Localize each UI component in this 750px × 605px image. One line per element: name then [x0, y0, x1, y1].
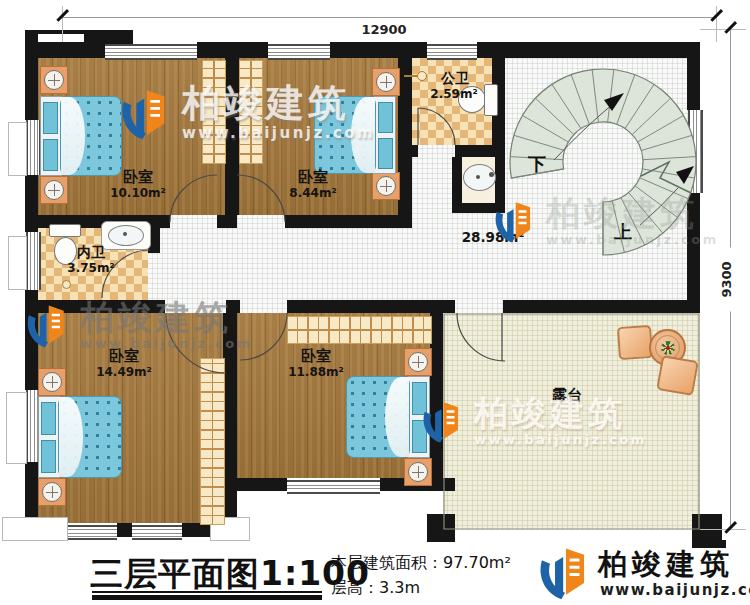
bedroom3-label: 卧室 [86, 348, 162, 365]
title-underline [92, 595, 322, 600]
wall [330, 42, 427, 58]
window [287, 480, 380, 494]
bed-headboard [374, 96, 396, 174]
nightstand [372, 172, 400, 200]
wall [25, 42, 105, 58]
bedroom4-label: 卧室 [278, 348, 354, 365]
nightstand [40, 66, 68, 94]
wall [225, 42, 239, 215]
bed-headboard [408, 376, 430, 458]
private-bath-area: 3.75m² [56, 261, 126, 275]
bed [346, 376, 410, 458]
bedroom1-label: 卧室 [97, 169, 179, 186]
extension-line [700, 29, 746, 30]
terrace-post [427, 514, 455, 542]
window-sill [8, 122, 27, 176]
wall [223, 313, 237, 537]
terrace-chair [656, 355, 699, 396]
bedroom4-area: 11.88m² [274, 365, 358, 379]
window-sill [6, 392, 27, 464]
bedroom2-label: 卧室 [272, 169, 354, 186]
public-bath-label: 公卫 [428, 71, 482, 86]
wall [452, 203, 505, 213]
toilet-tank [49, 224, 81, 237]
terrace-chair [617, 325, 653, 360]
wardrobe [239, 60, 263, 164]
building-area-text: 本层建筑面积：97.70m² [331, 553, 511, 574]
faucet [489, 172, 494, 177]
wall [226, 300, 240, 313]
hook-line [404, 75, 418, 77]
hall-area: 28.98m² [450, 229, 536, 245]
wall [285, 215, 412, 228]
bed [58, 396, 122, 478]
bedroom1-area: 10.10m² [97, 186, 179, 200]
wardrobe [202, 60, 226, 164]
private-bath-label: 内卫 [64, 245, 118, 260]
wall [687, 193, 700, 313]
bed-headboard [38, 396, 60, 478]
window [427, 44, 477, 60]
bedroom3-area: 14.49m² [82, 365, 166, 379]
wall [412, 145, 418, 157]
sink-drain [123, 232, 127, 236]
wall [25, 300, 165, 313]
nightstand [40, 176, 68, 204]
wall [237, 478, 287, 491]
window [132, 525, 182, 540]
window [26, 120, 41, 175]
window [688, 110, 703, 193]
wall [477, 42, 700, 58]
bed [60, 96, 122, 176]
dimension-top-value: 12900 [350, 22, 418, 37]
wall [25, 58, 38, 120]
door-hook [417, 71, 427, 81]
wall [117, 523, 132, 537]
nightstand [38, 478, 66, 506]
stairs-down-label: 下 [528, 152, 546, 176]
terrace-post [692, 514, 722, 542]
wall [398, 58, 412, 215]
wall [687, 42, 700, 110]
bedroom2-area: 8.44m² [272, 186, 354, 200]
brand-building-icon [536, 543, 594, 601]
toilet-tank [484, 84, 498, 116]
wall [217, 215, 237, 228]
floor-plan: 卧室 10.10m² 卧室 8.44m² 公卫 2.59m² 内卫 3.75m²… [0, 0, 750, 605]
nightstand [404, 348, 432, 376]
extension-line [700, 529, 746, 530]
sink-drain [476, 175, 480, 179]
bed [314, 96, 376, 174]
wall [25, 175, 38, 232]
window [68, 525, 117, 540]
wall [503, 300, 700, 313]
brand-url: www.baijunjz.com [600, 581, 750, 599]
bed-headboard [40, 96, 62, 176]
window-sill [2, 517, 68, 541]
stairs-up-label: 上 [614, 220, 632, 244]
brand-name: 柏竣建筑 [598, 545, 734, 585]
wardrobe [287, 316, 432, 344]
wardrobe [200, 358, 225, 525]
door-hook [62, 280, 71, 289]
nightstand [372, 68, 400, 96]
nightstand [404, 458, 432, 486]
nightstand [38, 368, 66, 396]
plant [661, 341, 675, 355]
dimension-line-top [62, 17, 716, 18]
window-sill [8, 236, 27, 290]
dimension-right-value: 9300 [719, 248, 734, 312]
title-underline [92, 591, 322, 593]
wall [455, 145, 505, 157]
wall [287, 300, 455, 313]
window [26, 232, 41, 290]
floor-height-text: 层高：3.3m [331, 578, 420, 599]
terrace-label: 露台 [541, 387, 593, 404]
public-bath-area: 2.59m² [422, 87, 486, 101]
window [105, 44, 197, 60]
window [268, 44, 330, 60]
wall [452, 157, 462, 205]
